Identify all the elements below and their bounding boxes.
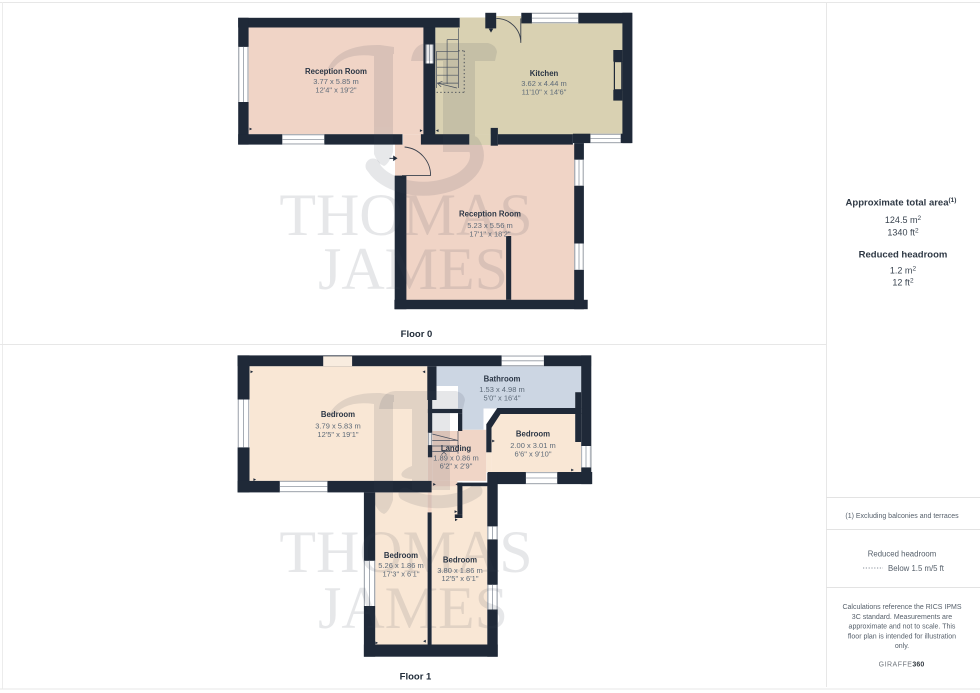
svg-text:124.5 m2: 124.5 m2 — [885, 215, 922, 225]
svg-text:11'10" x 14'6": 11'10" x 14'6" — [522, 88, 567, 97]
svg-text:JAMES: JAMES — [318, 575, 508, 641]
svg-text:1340 ft2: 1340 ft2 — [887, 228, 919, 238]
svg-text:Approximate total area(1): Approximate total area(1) — [846, 197, 957, 209]
svg-text:floor plan is intended for ill: floor plan is intended for illustration — [848, 633, 956, 640]
svg-text:GIRAFFE360: GIRAFFE360 — [879, 662, 925, 669]
svg-text:Reduced headroom: Reduced headroom — [859, 250, 948, 261]
svg-text:Bedroom: Bedroom — [516, 429, 550, 438]
svg-text:Below 1.5 m/5 ft: Below 1.5 m/5 ft — [888, 564, 945, 573]
svg-text:(1) Excluding balconies and te: (1) Excluding balconies and terraces — [845, 513, 959, 520]
svg-text:Bathroom: Bathroom — [484, 374, 521, 383]
svg-text:5'0" x 16'4": 5'0" x 16'4" — [484, 393, 521, 402]
svg-text:only.: only. — [895, 643, 909, 650]
svg-text:6'6" x 9'10": 6'6" x 9'10" — [515, 449, 552, 458]
svg-text:12'5" x 19'1": 12'5" x 19'1" — [317, 430, 358, 439]
svg-text:3C standard. Measurements are: 3C standard. Measurements are — [852, 614, 952, 621]
svg-text:Floor 0: Floor 0 — [401, 329, 433, 340]
svg-text:Floor 1: Floor 1 — [400, 672, 432, 683]
svg-text:Reduced headroom: Reduced headroom — [868, 549, 937, 558]
svg-text:Reception Room: Reception Room — [305, 67, 367, 76]
svg-text:approximate and not to scale.: approximate and not to scale. This — [849, 624, 956, 631]
svg-text:12'4" x 19'2": 12'4" x 19'2" — [315, 86, 356, 95]
svg-text:Calculations reference the RIC: Calculations reference the RICS IPMS — [842, 604, 961, 611]
svg-text:JAMES: JAMES — [318, 236, 508, 302]
svg-text:Kitchen: Kitchen — [530, 69, 559, 78]
